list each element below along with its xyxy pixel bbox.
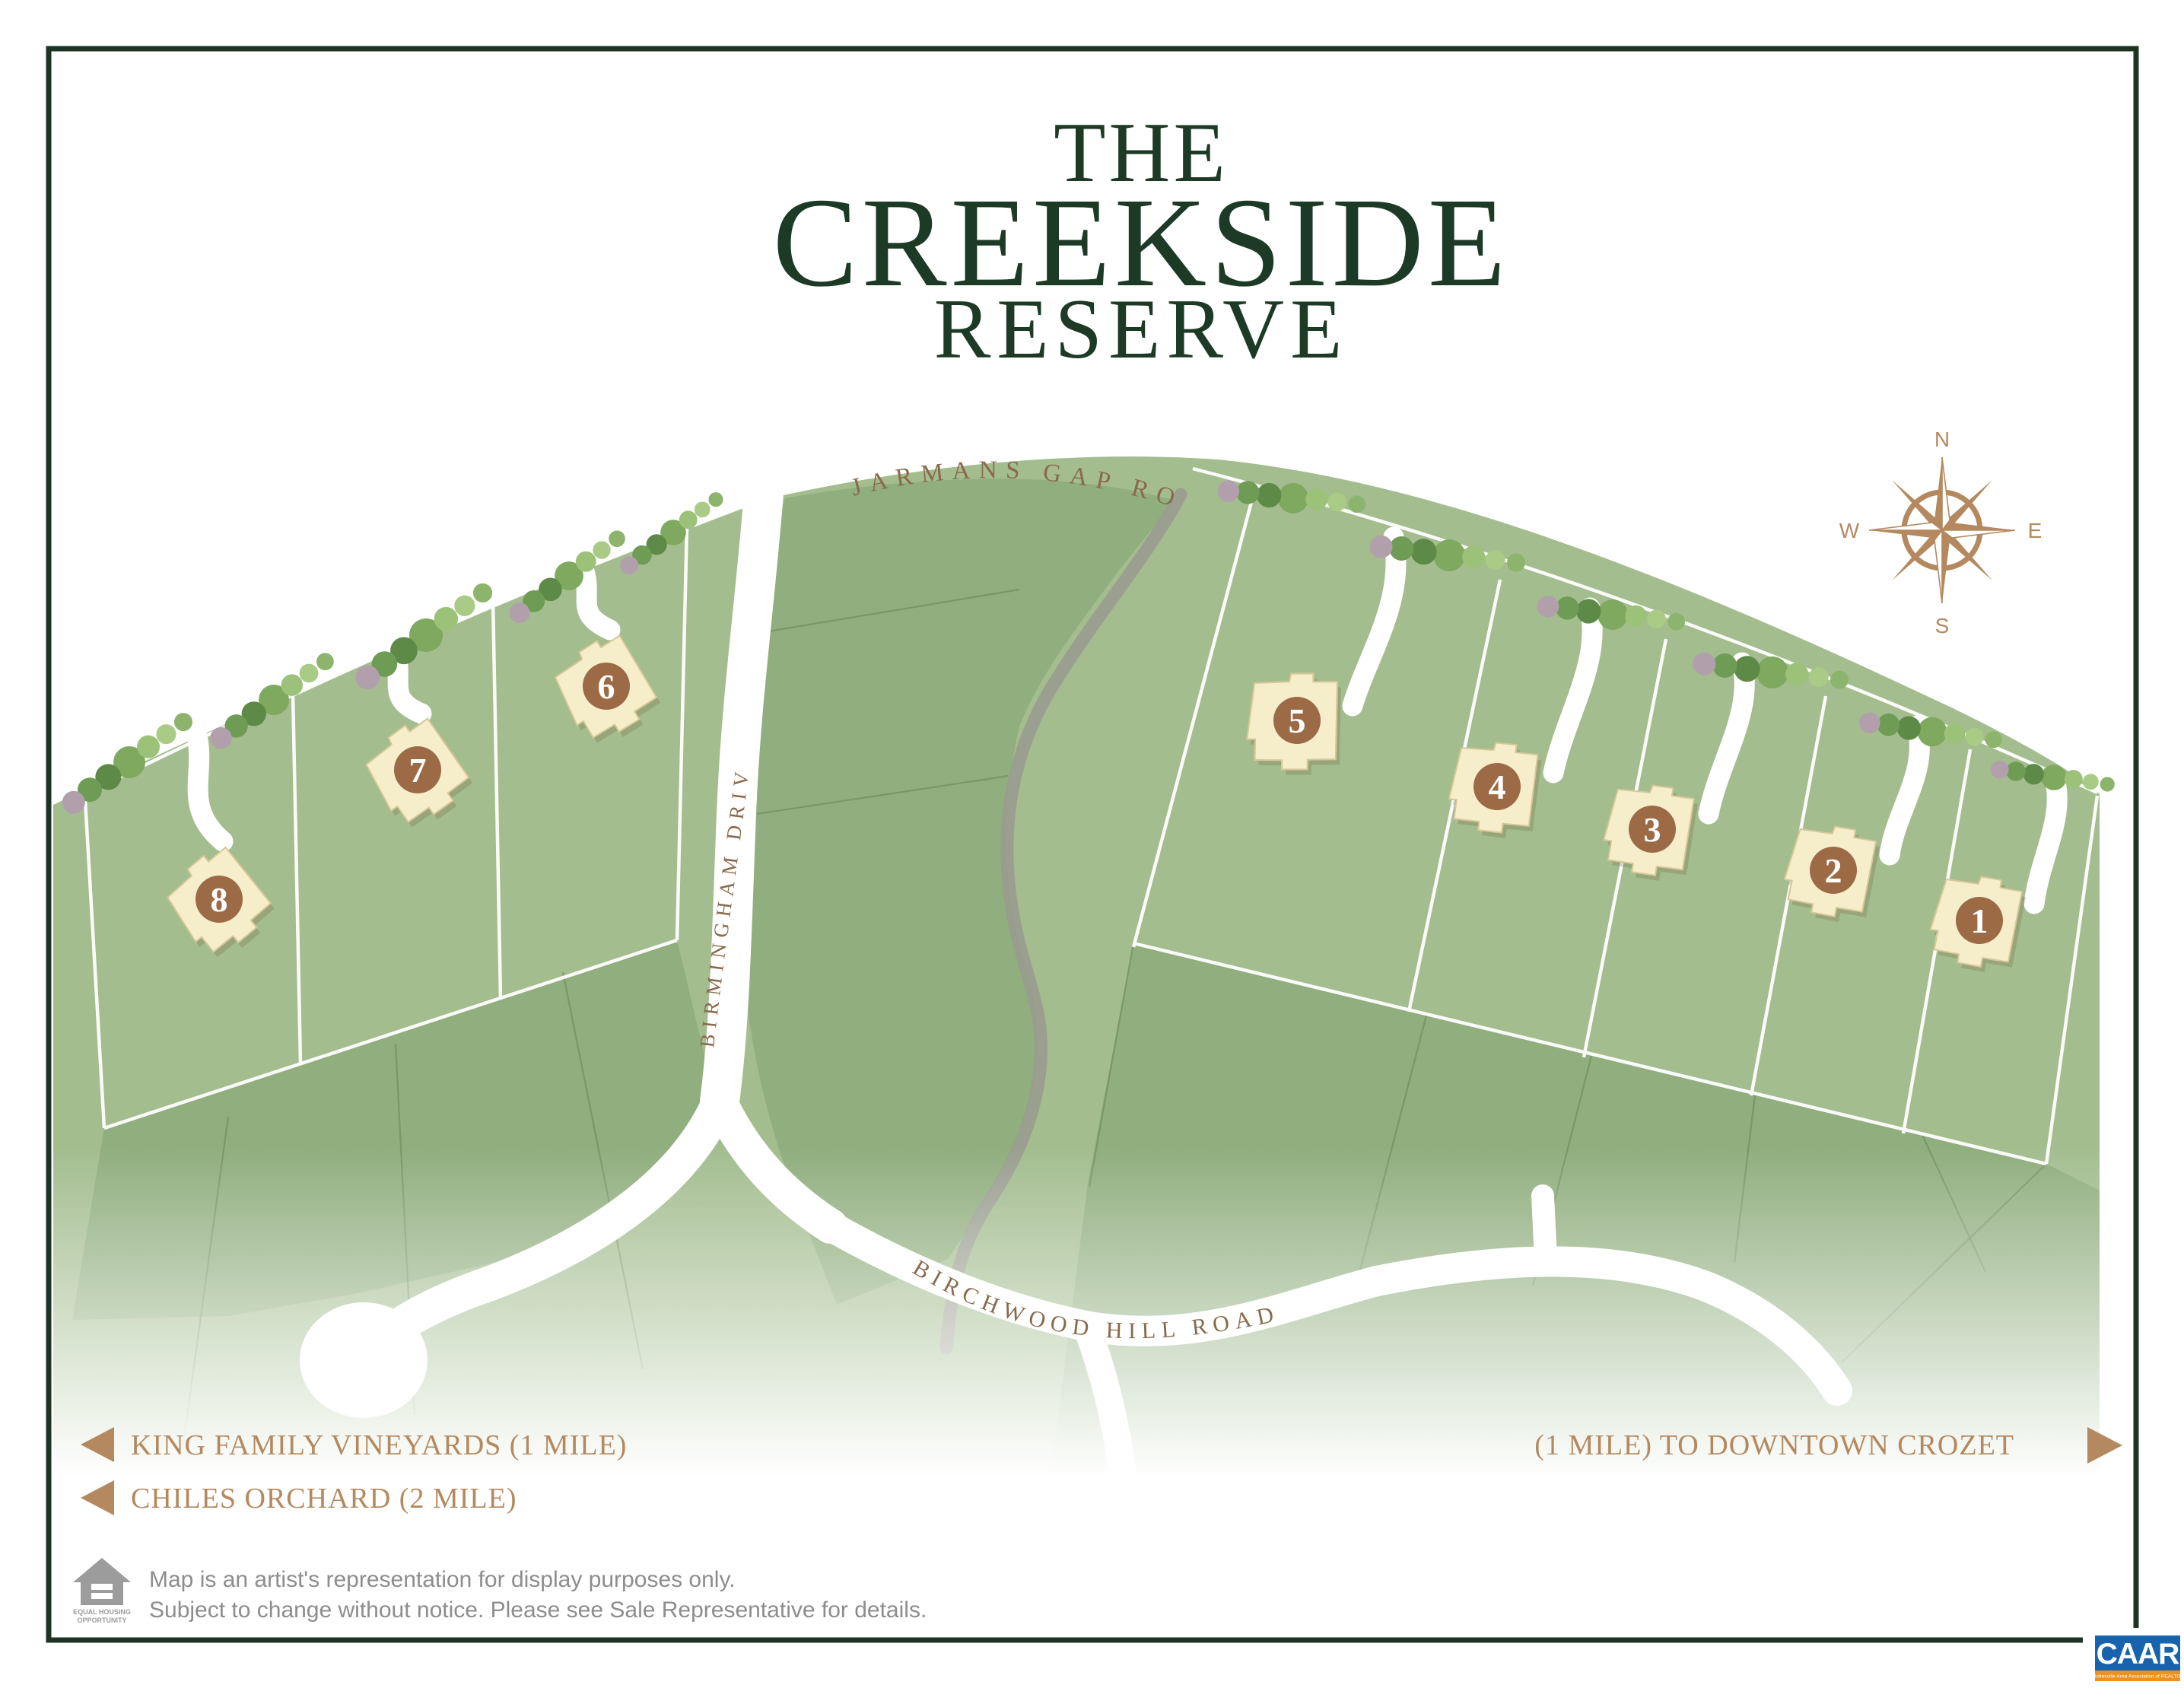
- disclaimer-line-2: Subject to change without notice. Please…: [149, 1597, 927, 1623]
- lot-number: 8: [211, 880, 228, 919]
- lot-number: 7: [409, 751, 427, 790]
- lot-number: 5: [1289, 701, 1306, 740]
- lot-number: 3: [1644, 810, 1661, 849]
- disclaimer-line-1: Map is an artist's representation for di…: [149, 1567, 736, 1592]
- compass-label-west: W: [1839, 519, 1860, 542]
- lot-5: 5: [1245, 667, 1349, 780]
- equal-housing-text: EQUAL HOUSING: [73, 1608, 131, 1616]
- direction-king-family: KING FAMILY VINEYARDS (1 MILE): [131, 1429, 627, 1461]
- compass-cardinal-points: [1869, 457, 2015, 603]
- compass-label-south: S: [1935, 614, 1950, 637]
- site-plan-page: JARMANS GAP ROAD BIRMINGHAM DRIVE BIRCHW…: [0, 0, 2184, 1688]
- direction-downtown-crozet: (1 MILE) TO DOWNTOWN CROZET: [1534, 1429, 2014, 1461]
- cul-de-sac-bulb: [300, 1302, 428, 1418]
- lot-number: 2: [1825, 851, 1842, 890]
- lot-number: 6: [598, 667, 615, 706]
- disclaimer-block: EQUAL HOUSING OPPORTUNITY Map is an arti…: [73, 1558, 927, 1624]
- arrow-right-icon: [2087, 1427, 2122, 1464]
- creekside-reserve-site-plan: JARMANS GAP ROAD BIRMINGHAM DRIVE BIRCHW…: [0, 0, 2184, 1688]
- caar-logo: CAAR Charlottesville Area Association of…: [2084, 1636, 2184, 1681]
- lot-number: 1: [1971, 901, 1988, 940]
- caar-logo-tagline: Charlottesville Area Association of REAL…: [2084, 1674, 2184, 1680]
- compass-label-north: N: [1934, 428, 1950, 451]
- compass-rose: N E S W: [1839, 428, 2043, 637]
- title-block: THE CREEKSIDE RESERVE: [773, 106, 1510, 377]
- equal-housing-icon: EQUAL HOUSING OPPORTUNITY: [73, 1558, 131, 1624]
- title-line-reserve: RESERVE: [934, 282, 1349, 377]
- compass-label-east: E: [2028, 519, 2043, 542]
- equal-housing-text: OPPORTUNITY: [77, 1616, 126, 1624]
- caar-logo-text: CAAR: [2097, 1638, 2179, 1671]
- lot-number: 4: [1489, 768, 1506, 806]
- road-north-stub: [1543, 1196, 1546, 1259]
- direction-chiles-orchard: CHILES ORCHARD (2 MILE): [131, 1483, 517, 1515]
